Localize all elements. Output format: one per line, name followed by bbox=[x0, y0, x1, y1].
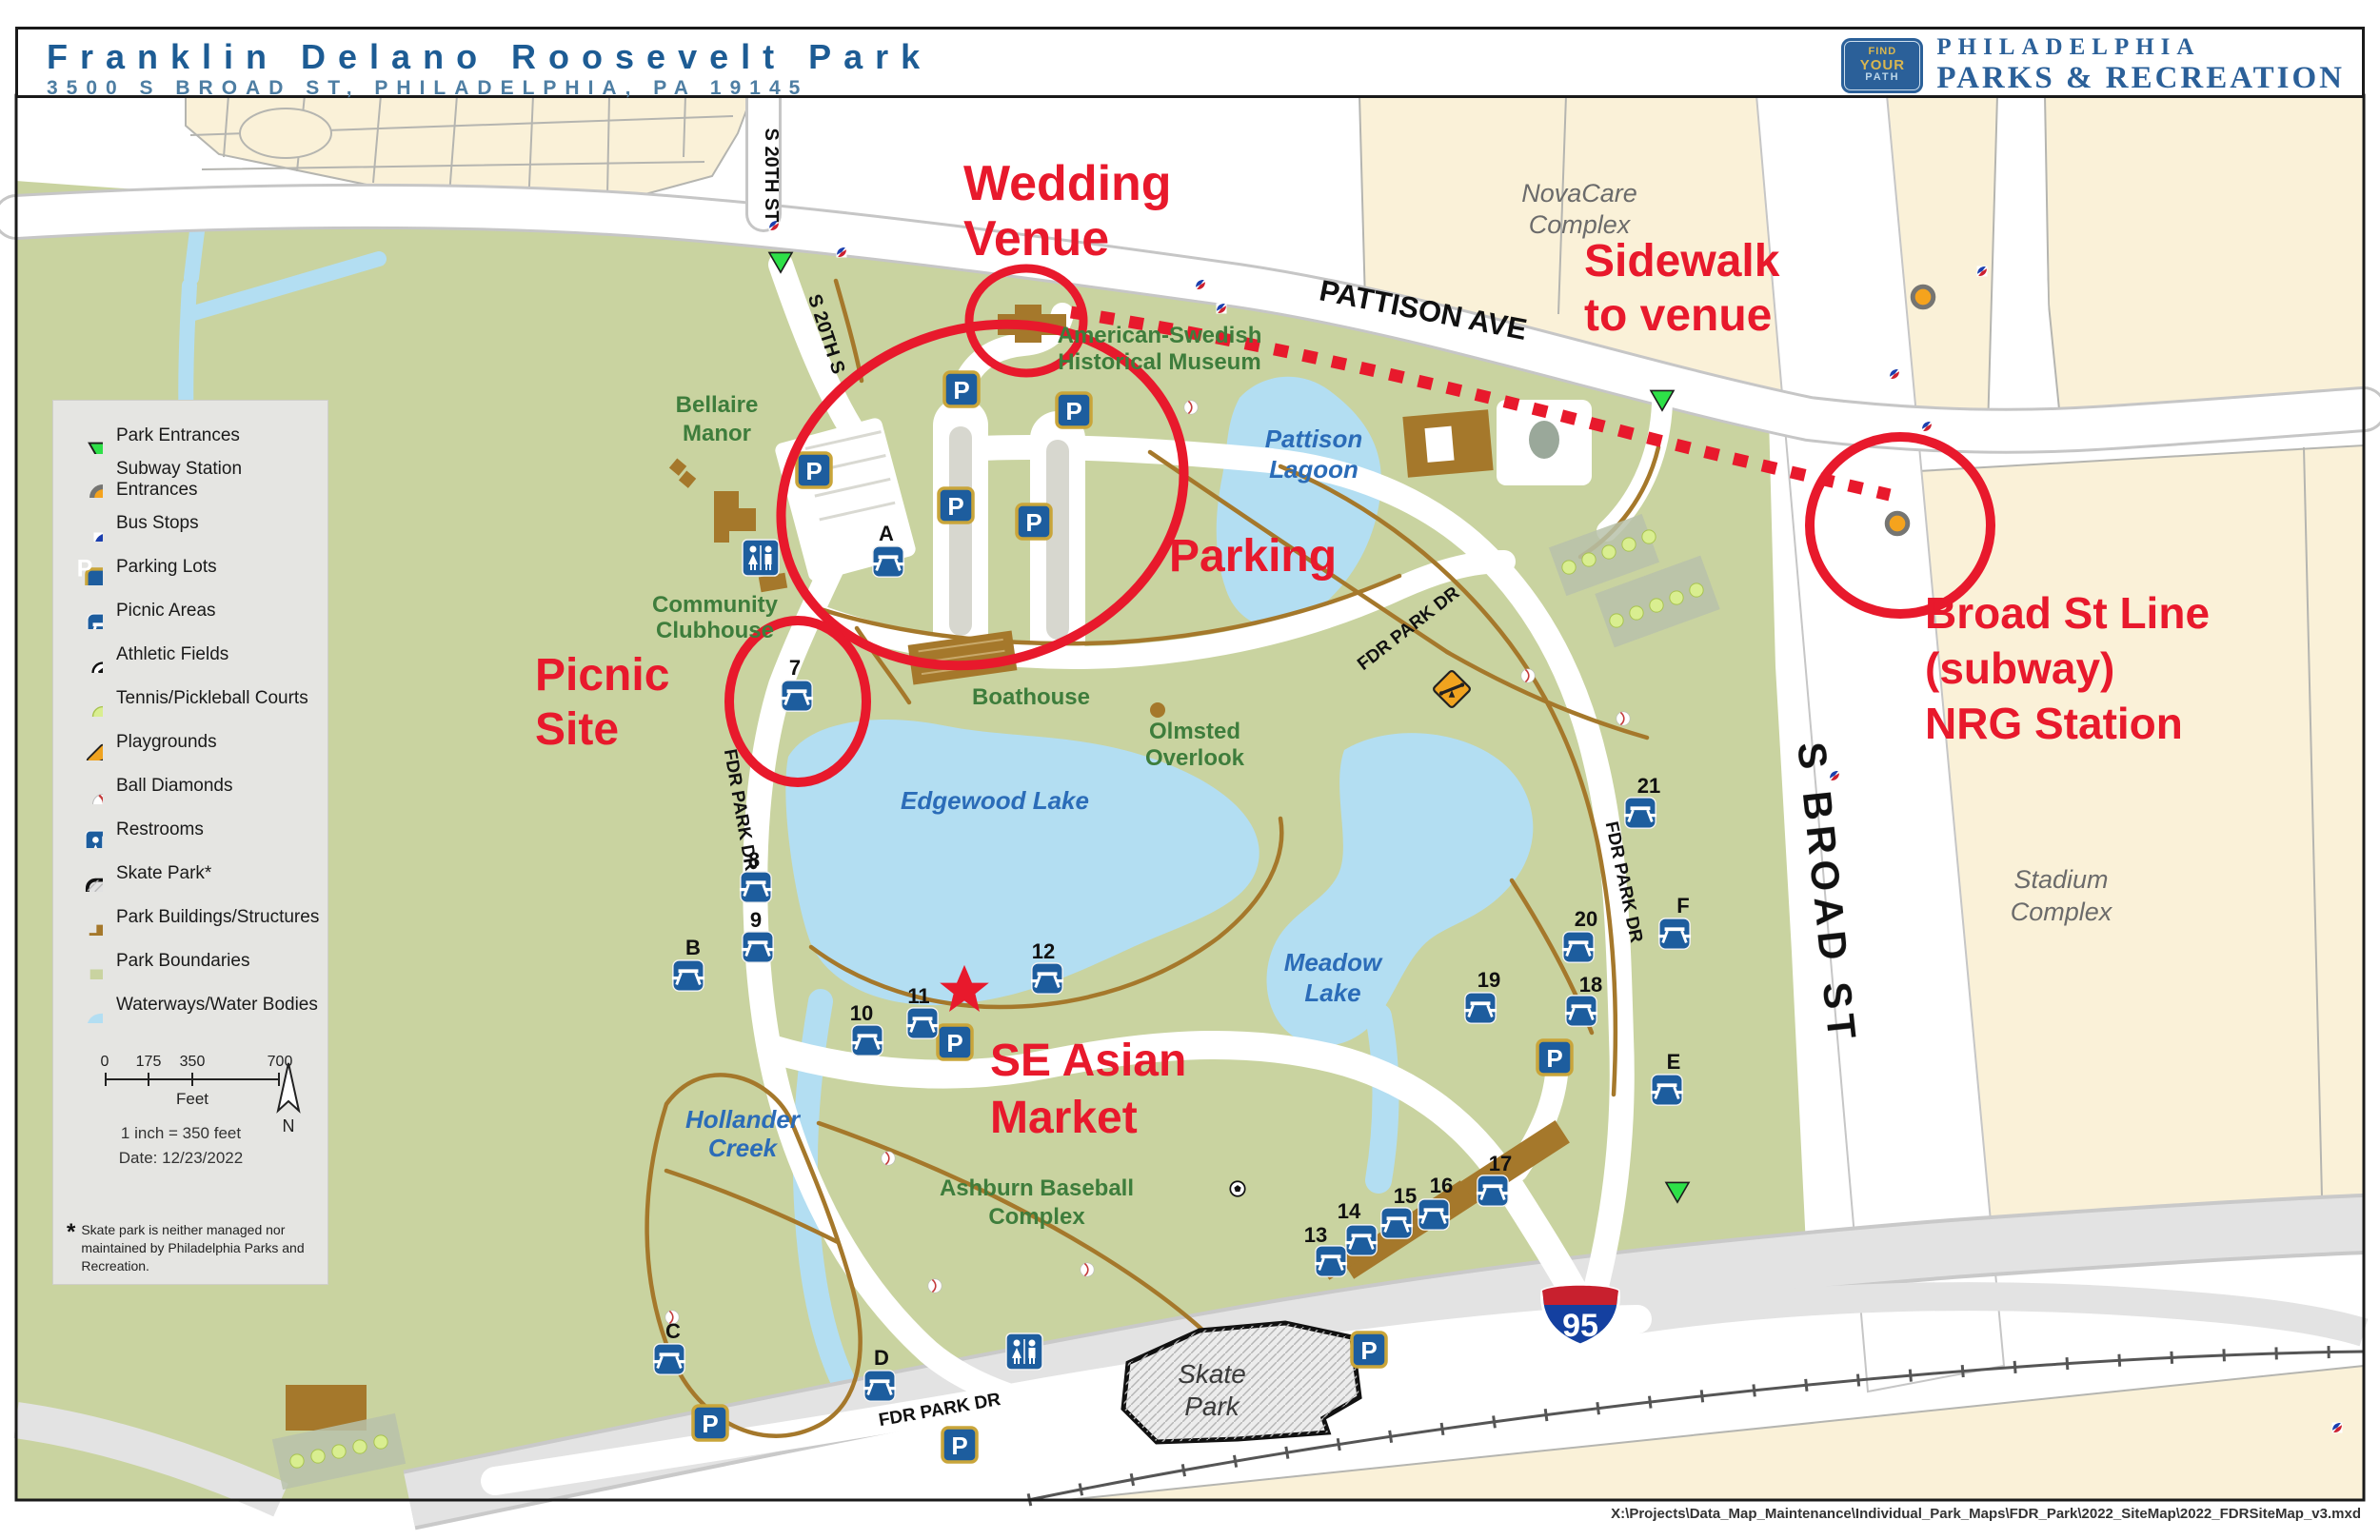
bus-stop-icon bbox=[1196, 280, 1206, 290]
i95-label: 95 bbox=[1562, 1308, 1598, 1344]
scale-tick-175: 175 bbox=[136, 1054, 162, 1071]
picnic-area-icon-16 bbox=[1418, 1199, 1450, 1230]
legend-item-skate-park: Skate Park* bbox=[67, 852, 327, 896]
legend-label: Park Entrances bbox=[116, 425, 240, 446]
clubhouse-label-2: Clubhouse bbox=[656, 618, 774, 643]
bus-stop-icon bbox=[1217, 304, 1227, 314]
ball-diamond-icon bbox=[1081, 1263, 1094, 1276]
olmsted-label-1: Olmsted bbox=[1149, 719, 1240, 744]
subway-annotation-1: Broad St Line bbox=[1925, 588, 2210, 638]
picnic-area-icon-9 bbox=[742, 932, 774, 962]
scale-tick-0: 0 bbox=[101, 1054, 109, 1071]
novacare-label-2: Complex bbox=[1529, 210, 1632, 239]
ashburn-label-1: Ashburn Baseball bbox=[940, 1175, 1134, 1201]
park-building-icon bbox=[67, 899, 103, 936]
parking-letter: P bbox=[953, 376, 969, 405]
parking-lot-icon: P bbox=[67, 549, 103, 585]
scale-ticks: 0 175 350 700 bbox=[105, 1054, 295, 1073]
north-arrow-icon bbox=[276, 1061, 301, 1115]
legend-item-park-entrances: Park Entrances bbox=[67, 414, 327, 458]
picnic-area-icon-F bbox=[1658, 918, 1691, 949]
bus-stop-icon bbox=[1977, 267, 1988, 277]
tennis-court-icon bbox=[1582, 553, 1596, 566]
sidewalk-annotation-2: to venue bbox=[1584, 290, 1772, 341]
edgewood-label: Edgewood Lake bbox=[901, 786, 1089, 815]
restroom-icon bbox=[1006, 1333, 1042, 1370]
legend-label: Athletic Fields bbox=[116, 644, 228, 665]
legend-item-subway-entrances: Subway Station Entrances bbox=[67, 458, 327, 502]
skate-park-icon bbox=[67, 856, 103, 892]
subway-entrance-icon bbox=[1913, 286, 1934, 307]
bus-stop-icon bbox=[1890, 369, 1900, 380]
picnic-area-icon-11 bbox=[906, 1008, 939, 1038]
meadow-label-2: Lake bbox=[1304, 978, 1360, 1007]
street-road-ne bbox=[2020, 95, 2030, 430]
legend-item-tennis-courts: Tennis/Pickleball Courts bbox=[67, 677, 327, 721]
bellaire-label-1: Bellaire bbox=[676, 392, 759, 418]
picnic-area-icon-E bbox=[1651, 1075, 1683, 1105]
footnote-mark: * bbox=[67, 1221, 75, 1275]
tennis-court-icon bbox=[311, 1450, 325, 1463]
legend-item-ball-diamonds: Ball Diamonds bbox=[67, 764, 327, 808]
picnic-area-label-19: 19 bbox=[1478, 968, 1500, 992]
bus-stop-icon bbox=[1922, 422, 1933, 432]
picnic-area-icon-C bbox=[653, 1344, 685, 1374]
parks-recreation-logo: FIND YOUR PATH PHILADELPHIA PARKS & RECR… bbox=[1841, 34, 2345, 96]
parking-letter: P bbox=[947, 492, 963, 521]
hollander-label-1: Hollander bbox=[685, 1105, 802, 1134]
picnic-area-label-9: 9 bbox=[750, 908, 762, 932]
parking-letter: P bbox=[1065, 397, 1081, 425]
legend-label: Bus Stops bbox=[116, 513, 199, 534]
picnic-area-icon-D bbox=[863, 1371, 896, 1401]
legend-label: Park Boundaries bbox=[116, 951, 249, 972]
tennis-court-icon bbox=[1622, 538, 1636, 551]
picnic-area-icon-15 bbox=[1380, 1208, 1413, 1238]
picnic-area-icon-17 bbox=[1477, 1175, 1509, 1206]
picnic-area-icon-21 bbox=[1624, 798, 1656, 828]
legend-label: Waterways/Water Bodies bbox=[116, 995, 318, 1016]
parking-letter: P bbox=[1025, 508, 1041, 537]
parking-annotation: Parking bbox=[1169, 531, 1337, 582]
legend-item-picnic-areas: Picnic Areas bbox=[67, 589, 327, 633]
map-sheet: PPPPPPPPPPA789B101112131415161718192021E… bbox=[0, 0, 2380, 1540]
playground-icon bbox=[67, 724, 103, 760]
bus-stop-icon bbox=[2332, 1423, 2343, 1433]
picnic-area-label-12: 12 bbox=[1032, 939, 1055, 963]
picnic-area-label-15: 15 bbox=[1394, 1184, 1417, 1208]
parking-letter: P bbox=[702, 1410, 718, 1438]
badge-line2: YOUR bbox=[1860, 58, 1905, 73]
org-line2: PARKS & RECREATION bbox=[1936, 61, 2345, 96]
picnic-area-label-18: 18 bbox=[1579, 973, 1602, 997]
subway-entrance-icon bbox=[67, 462, 103, 498]
tennis-court-icon bbox=[353, 1440, 367, 1453]
ball-diamond-icon bbox=[1184, 401, 1198, 414]
picnic-area-icon-20 bbox=[1562, 932, 1595, 962]
tennis-court-icon bbox=[1562, 561, 1576, 574]
sidewalk-annotation-1: Sidewalk bbox=[1584, 236, 1780, 286]
tennis-court-icon bbox=[332, 1445, 346, 1458]
ashburn-label-2: Complex bbox=[988, 1204, 1085, 1230]
lagoon-label-1: Pattison bbox=[1265, 424, 1363, 453]
clubhouse-label-1: Community bbox=[652, 592, 779, 618]
market-annotation-1: SE Asian bbox=[990, 1036, 1186, 1086]
page-title: Franklin Delano Roosevelt Park bbox=[47, 37, 932, 77]
badge-line1: FIND bbox=[1869, 47, 1897, 58]
legend-label: Park Buildings/Structures bbox=[116, 907, 319, 928]
legend-label: Subway Station Entrances bbox=[116, 459, 327, 501]
picnic-annotation-1: Picnic bbox=[535, 650, 669, 701]
legend-label: Restrooms bbox=[116, 819, 204, 840]
org-line1: PHILADELPHIA bbox=[1936, 34, 2345, 61]
ball-diamond-icon bbox=[882, 1152, 895, 1165]
parking-letter: P bbox=[951, 1431, 967, 1460]
athletic-field-icon bbox=[1230, 1181, 1244, 1195]
parking-letter: P bbox=[946, 1029, 962, 1057]
park-entrance-icon bbox=[67, 418, 103, 454]
legend-label: Ball Diamonds bbox=[116, 776, 233, 797]
subway-annotation-3: NRG Station bbox=[1925, 699, 2183, 748]
meadow-lake-tail bbox=[1378, 1017, 1386, 1180]
header: Franklin Delano Roosevelt Park 3500 S BR… bbox=[15, 27, 2365, 98]
picnic-area-icon-7 bbox=[781, 681, 813, 711]
picnic-area-icon-A bbox=[872, 546, 904, 577]
scale-bar-line bbox=[105, 1073, 280, 1086]
find-your-path-badge-icon: FIND YOUR PATH bbox=[1841, 38, 1923, 93]
market-annotation-2: Market bbox=[990, 1093, 1138, 1143]
park-map: PPPPPPPPPPA789B101112131415161718192021E… bbox=[0, 0, 2380, 1540]
source-file-path: X:\Projects\Data_Map_Maintenance\Individ… bbox=[1028, 1506, 2361, 1522]
picnic-area-icon-13 bbox=[1315, 1246, 1347, 1276]
picnic-area-icon-18 bbox=[1565, 996, 1597, 1026]
city-block-ne bbox=[2045, 95, 2364, 428]
skatepark-label-1: Skate bbox=[1178, 1359, 1246, 1389]
parking-letter: P bbox=[805, 457, 822, 485]
legend-item-parking-lots: P Parking Lots bbox=[67, 545, 327, 589]
picnic-area-icon-8 bbox=[740, 872, 772, 902]
tennis-court-icon bbox=[1610, 614, 1623, 627]
tennis-court-icon bbox=[67, 681, 103, 717]
scale-unit: Feet bbox=[105, 1090, 280, 1109]
legend-label: Picnic Areas bbox=[116, 601, 216, 622]
picnic-area-label-21: 21 bbox=[1637, 774, 1660, 798]
museum-label-1: American-Swedish bbox=[1058, 323, 1262, 348]
skatepark-label-2: Park bbox=[1184, 1392, 1241, 1421]
picnic-area-label-11: 11 bbox=[907, 984, 929, 1008]
ball-diamond-icon bbox=[67, 768, 103, 804]
picnic-area-icon-10 bbox=[851, 1025, 883, 1056]
picnic-area-label-14: 14 bbox=[1338, 1199, 1361, 1223]
stadium-label-1: Stadium bbox=[2013, 865, 2108, 894]
footnote-line2: maintained by Philadelphia Parks and Rec… bbox=[81, 1240, 304, 1273]
picnic-area-label-B: B bbox=[685, 936, 701, 959]
olmsted-label-2: Overlook bbox=[1145, 745, 1245, 771]
legend-item-park-buildings: Park Buildings/Structures bbox=[67, 896, 327, 939]
waterway-icon bbox=[67, 987, 103, 1023]
restroom-icon bbox=[743, 540, 779, 576]
parking-letter: P bbox=[1360, 1336, 1377, 1365]
tennis-court-icon bbox=[1670, 591, 1683, 604]
picnic-area-label-F: F bbox=[1676, 894, 1689, 918]
athletic-field-icon bbox=[67, 637, 103, 673]
picnic-annotation-2: Site bbox=[535, 704, 619, 755]
hollander-label-2: Creek bbox=[708, 1134, 779, 1162]
picnic-area-label-20: 20 bbox=[1575, 907, 1597, 931]
tennis-court-icon bbox=[1690, 583, 1703, 597]
stadium-label-2: Complex bbox=[2011, 898, 2113, 926]
picnic-area-label-A: A bbox=[879, 522, 894, 545]
fdr-park-dr-north bbox=[962, 447, 1271, 461]
legend-label: Playgrounds bbox=[116, 732, 217, 753]
tennis-court-icon bbox=[374, 1435, 387, 1449]
legend-item-waterways: Waterways/Water Bodies bbox=[67, 983, 327, 1027]
skate-park-footnote: * Skate park is neither managed nor main… bbox=[67, 1221, 327, 1275]
bellaire-label-2: Manor bbox=[683, 421, 751, 446]
picnic-area-label-17: 17 bbox=[1489, 1152, 1512, 1175]
lagoon-label-2: Lagoon bbox=[1269, 455, 1359, 484]
restroom-icon bbox=[67, 812, 103, 848]
tennis-court-icon bbox=[290, 1454, 304, 1468]
page-subtitle: 3500 S BROAD ST, PHILADELPHIA, PA 19145 bbox=[47, 77, 808, 100]
legend-label: Parking Lots bbox=[116, 557, 217, 578]
north-label: N bbox=[274, 1116, 303, 1136]
legend-label: Tennis/Pickleball Courts bbox=[116, 688, 308, 709]
ball-diamond-icon bbox=[1616, 712, 1630, 725]
boathouse-label: Boathouse bbox=[972, 684, 1090, 710]
picnic-area-label-E: E bbox=[1667, 1050, 1681, 1074]
map-date: Date: 12/23/2022 bbox=[67, 1149, 295, 1168]
legend-item-playgrounds: Playgrounds bbox=[67, 721, 327, 764]
tennis-court-icon bbox=[1642, 530, 1656, 543]
s20th-st-label: S 20TH ST bbox=[761, 128, 782, 223]
picnic-area-icon-12 bbox=[1031, 963, 1063, 994]
picnic-area-label-13: 13 bbox=[1304, 1223, 1327, 1247]
badge-line3: PATH bbox=[1865, 72, 1899, 84]
scale-ratio: 1 inch = 350 feet bbox=[67, 1124, 295, 1143]
footnote-line1: Skate park is neither managed nor bbox=[81, 1222, 285, 1237]
org-name: PHILADELPHIA PARKS & RECREATION bbox=[1936, 34, 2345, 96]
wedding-annotation-2: Venue bbox=[963, 211, 1109, 267]
picnic-area-label-10: 10 bbox=[850, 1001, 873, 1025]
wedding-annotation-1: Wedding bbox=[963, 156, 1172, 211]
legend-item-bus-stops: Bus Stops bbox=[67, 502, 327, 545]
legend-label: Skate Park* bbox=[116, 863, 211, 884]
tennis-court-icon bbox=[1650, 599, 1663, 612]
north-arrow: N bbox=[274, 1061, 303, 1136]
subway-entrance-icon bbox=[1887, 513, 1908, 534]
svg-text:P: P bbox=[77, 557, 92, 582]
bus-stop-icon bbox=[67, 505, 103, 542]
picnic-area-icon bbox=[67, 593, 103, 629]
scale-bar: 0 175 350 700 Feet 1 inch = 350 feet Dat… bbox=[67, 1054, 327, 1196]
museum-label-2: Historical Museum bbox=[1058, 349, 1260, 375]
scale-tick-350: 350 bbox=[180, 1054, 206, 1071]
meadow-label-1: Meadow bbox=[1284, 948, 1383, 977]
picnic-area-label-7: 7 bbox=[789, 656, 801, 680]
ball-diamond-icon bbox=[928, 1279, 942, 1293]
legend-item-athletic-fields: Athletic Fields bbox=[67, 633, 327, 677]
picnic-area-label-D: D bbox=[874, 1346, 889, 1370]
parking-letter: P bbox=[1546, 1044, 1562, 1073]
picnic-area-icon-B bbox=[672, 960, 704, 991]
tennis-court-icon bbox=[1630, 606, 1643, 620]
tennis-court-icon bbox=[1602, 545, 1616, 559]
picnic-area-icon-19 bbox=[1464, 993, 1497, 1023]
novacare-label-1: NovaCare bbox=[1521, 179, 1637, 207]
picnic-area-icon-14 bbox=[1345, 1225, 1378, 1255]
picnic-area-label-C: C bbox=[665, 1319, 681, 1343]
bus-stop-icon bbox=[837, 247, 847, 258]
legend: Park Entrances Subway Station Entrances … bbox=[52, 400, 328, 1285]
subway-annotation-2: (subway) bbox=[1925, 643, 2114, 693]
park-boundary-icon bbox=[67, 943, 103, 979]
picnic-area-label-16: 16 bbox=[1430, 1174, 1453, 1197]
legend-item-park-boundaries: Park Boundaries bbox=[67, 939, 327, 983]
ball-diamond-icon bbox=[1521, 669, 1535, 682]
legend-item-restrooms: Restrooms bbox=[67, 808, 327, 852]
